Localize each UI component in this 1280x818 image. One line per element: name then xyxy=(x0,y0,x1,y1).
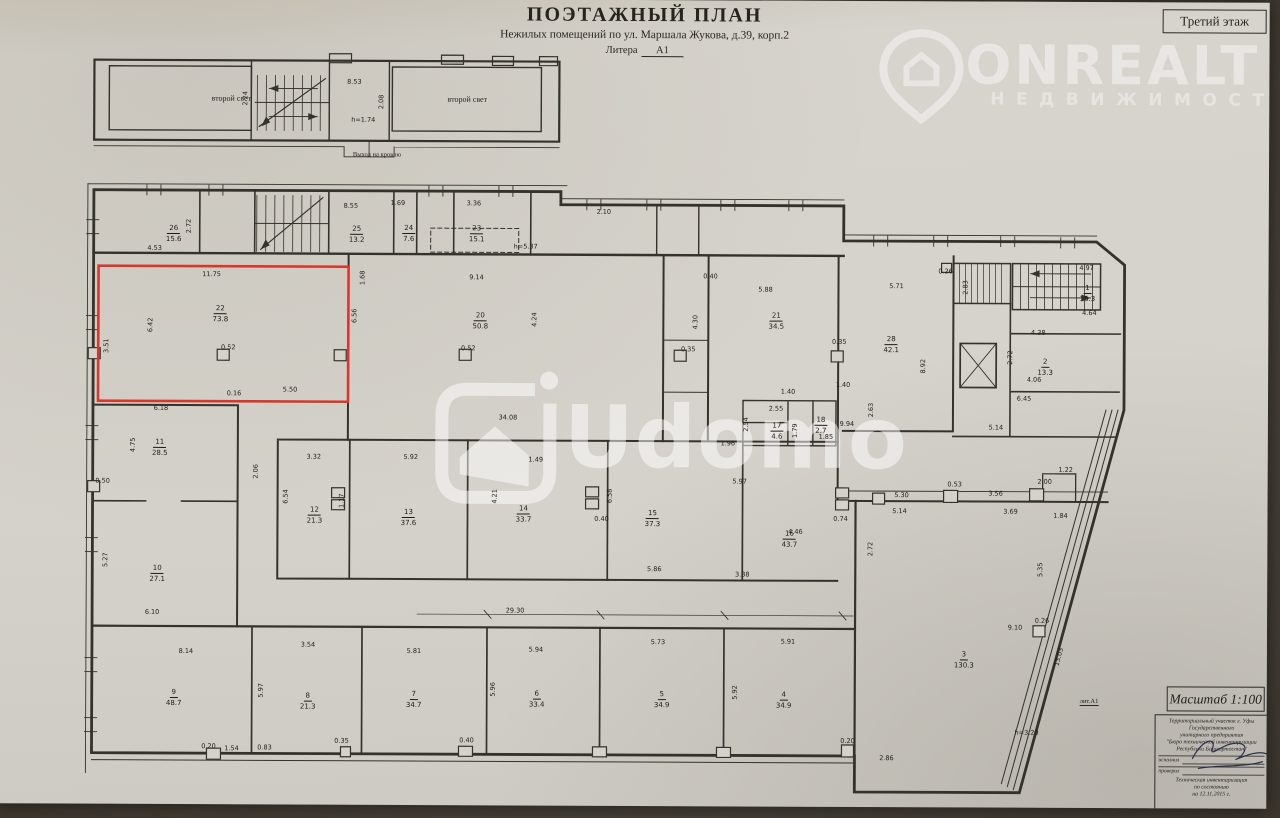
dimension-label: 4.21 xyxy=(491,489,499,504)
dimension-label: 3.36 xyxy=(467,199,482,207)
dimension-label: 1.17 xyxy=(338,493,346,508)
dimension-label: 2.10 xyxy=(597,208,612,216)
stamp-line: на 12.11.2015 г. xyxy=(1158,791,1264,798)
dimension-label: 5.96 xyxy=(489,682,497,697)
dimension-label: 2.08 xyxy=(377,95,385,110)
dimension-label: 6.58 xyxy=(606,489,614,504)
stamp-sign-label: исполнил xyxy=(1158,757,1179,764)
dimension-label: 5.30 xyxy=(894,491,909,499)
room-label: 1643.7 xyxy=(782,523,798,549)
room-label: 434.9 xyxy=(776,684,792,710)
dimension-label: 4.64 xyxy=(1082,309,1097,317)
dimension-label: 2.86 xyxy=(879,754,894,762)
dimension-label: 1.79 xyxy=(791,423,799,438)
room-label: 2513.2 xyxy=(349,218,365,244)
dimension-label: 1.69 xyxy=(391,199,406,207)
dimension-label: 0.74 xyxy=(833,515,848,523)
dimension-label: 2.54 xyxy=(742,417,750,432)
room-label: 633.4 xyxy=(529,683,545,709)
dimension-label: 3.51 xyxy=(102,338,110,353)
dimension-label: 5.92 xyxy=(731,685,739,700)
dimension-label: 8.92 xyxy=(919,359,927,374)
dimension-label: 5.14 xyxy=(989,424,1004,432)
room-label: 213.3 xyxy=(1037,351,1053,377)
dimension-label: 0.40 xyxy=(594,515,609,523)
dimension-label: 5.92 xyxy=(404,453,419,461)
dimension-label: 0.40 xyxy=(703,272,718,280)
dimension-label: 5.73 xyxy=(651,638,666,646)
plan-labels-layer: 8.532.08h=1.742.244.532.728.551.693.36h=… xyxy=(0,0,1270,809)
dimension-label: 0.83 xyxy=(257,743,272,751)
dimension-label: 3.69 xyxy=(1003,508,1018,516)
dimension-label: 6.56 xyxy=(350,309,358,324)
dimension-label: 6.10 xyxy=(145,608,160,616)
dimension-label: 1.84 xyxy=(1053,512,1068,520)
dimension-label: 9.14 xyxy=(469,273,484,281)
dimension-label: h=1.74 xyxy=(351,116,375,124)
plan-text-label: второй свет xyxy=(212,94,252,103)
room-label: 734.7 xyxy=(406,683,422,709)
dimension-label: 5.86 xyxy=(647,565,662,573)
dimension-label: 5.27 xyxy=(101,552,109,567)
dimension-label: 2.83 xyxy=(961,280,969,295)
room-label: 1433.7 xyxy=(516,497,532,523)
dimension-label: 0.35 xyxy=(681,345,696,353)
room-label: 1337.6 xyxy=(401,501,417,527)
dimension-label: 5.91 xyxy=(781,638,796,646)
dimension-label: 34.08 xyxy=(499,413,518,421)
dimension-label: 3.38 xyxy=(735,570,750,578)
dimension-label: 6.45 xyxy=(1017,395,1032,403)
dimension-label: 2.55 xyxy=(769,405,784,413)
dimension-label: h=3.20 xyxy=(1015,729,1039,737)
dimension-label: 5.14 xyxy=(892,507,907,515)
room-label: 182.7 xyxy=(814,409,827,435)
room-label: 3130.3 xyxy=(954,643,974,669)
room-label: 174.6 xyxy=(770,415,783,441)
dimension-label: 5.88 xyxy=(758,286,773,294)
dimension-label: 3.56 xyxy=(988,490,1003,498)
dimension-label: 2.63 xyxy=(867,403,875,418)
dimension-label: 1.40 xyxy=(836,381,851,389)
scale-box: Масштаб 1:100 xyxy=(1167,686,1265,711)
dimension-label: 6.54 xyxy=(282,489,290,504)
room-label: 2842.1 xyxy=(883,328,899,354)
dimension-label: 9.10 xyxy=(1008,624,1023,632)
dimension-label: 3.32 xyxy=(307,453,322,461)
dimension-label: 4.97 xyxy=(1079,264,1094,272)
dimension-label: 1.40 xyxy=(781,388,796,396)
dimension-label: 0.52 xyxy=(461,344,476,352)
dimension-label: 0.26 xyxy=(1035,617,1050,625)
room-label: 1537.3 xyxy=(645,502,661,528)
dimension-label: 6.18 xyxy=(154,404,169,412)
dimension-label: 29.30 xyxy=(506,606,525,614)
room-label: 948.7 xyxy=(166,681,182,707)
dimension-label: 5.50 xyxy=(283,385,298,393)
dimension-label: 2.72 xyxy=(866,542,874,557)
dimension-label: 1.96 xyxy=(721,439,736,447)
dimension-label: 4.53 xyxy=(147,244,162,252)
stamp-sign-label: проверил xyxy=(1158,768,1179,775)
dimension-label: 0.50 xyxy=(95,477,110,485)
scanned-sheet: ПОЭТАЖНЫЙ ПЛАН Нежилых помещений по ул. … xyxy=(0,0,1270,809)
dimension-label: 5.35 xyxy=(1036,563,1044,578)
dimension-label: 0.26 xyxy=(938,267,953,275)
room-label: 821.3 xyxy=(300,685,316,711)
room-label: 1128.5 xyxy=(152,431,168,457)
dimension-label: 5.71 xyxy=(889,282,904,290)
dimension-label: 5.94 xyxy=(529,646,544,654)
dimension-label: 1.22 xyxy=(1058,466,1073,474)
dimension-label: 4.38 xyxy=(1031,329,1046,337)
dimension-label: 11.75 xyxy=(202,270,221,278)
signature-scribble xyxy=(1186,728,1269,780)
room-label: 2273.8 xyxy=(213,297,229,323)
dimension-label: 4.30 xyxy=(691,315,699,330)
dimension-label: 3.54 xyxy=(301,641,316,649)
room-label: 2134.5 xyxy=(769,305,785,331)
dimension-label: 0.35 xyxy=(334,737,349,745)
dimension-label: 6.42 xyxy=(146,318,154,333)
plan-text-label: второй свет xyxy=(448,95,488,104)
dimension-label: 0.53 xyxy=(947,480,962,488)
dimension-label: 4.75 xyxy=(129,438,137,453)
room-label: 115.3 xyxy=(1080,277,1096,303)
dimension-label: 2.00 xyxy=(1037,478,1052,486)
room-label: 2315.1 xyxy=(469,217,485,243)
room-label: 2050.8 xyxy=(473,304,489,330)
dimension-label: 2.06 xyxy=(252,464,260,479)
dimension-label: 13.03 xyxy=(1053,647,1066,667)
room-label: 2615.6 xyxy=(166,217,182,243)
dimension-label: 0.16 xyxy=(227,389,242,397)
dimension-label: 2.72 xyxy=(185,219,193,234)
dimension-label: 0.35 xyxy=(832,338,847,346)
dimension-label: 1.49 xyxy=(528,456,543,464)
dimension-label: 5.81 xyxy=(407,647,422,655)
dimension-label: 4.24 xyxy=(530,312,538,327)
dimension-label: 0.52 xyxy=(221,343,236,351)
plan-text-label: Выход на кровлю xyxy=(353,151,401,158)
lit-note: лит.А1 xyxy=(1080,698,1099,706)
dimension-label: 0.40 xyxy=(459,736,474,744)
room-label: 1027.1 xyxy=(149,557,165,583)
dimension-label: 0.20 xyxy=(201,742,216,750)
dimension-label: 8.14 xyxy=(179,647,194,655)
dimension-label: 5.97 xyxy=(732,477,747,485)
room-label: 247.6 xyxy=(402,217,415,243)
dimension-label: 5.97 xyxy=(257,683,265,698)
dimension-label: 9.94 xyxy=(840,420,855,428)
dimension-label: 4.06 xyxy=(1027,376,1042,384)
dimension-label: h=5.37 xyxy=(514,242,538,250)
dimension-label: 0.20 xyxy=(840,737,855,745)
dimension-label: 8.53 xyxy=(347,78,362,86)
dimension-label: 1.54 xyxy=(224,744,239,752)
room-label: 534.9 xyxy=(654,683,670,709)
room-label: 1221.3 xyxy=(307,499,323,525)
dimension-label: 8.55 xyxy=(344,202,359,210)
dimension-label: 2.72 xyxy=(1006,350,1014,365)
dimension-label: 1.68 xyxy=(359,271,367,286)
